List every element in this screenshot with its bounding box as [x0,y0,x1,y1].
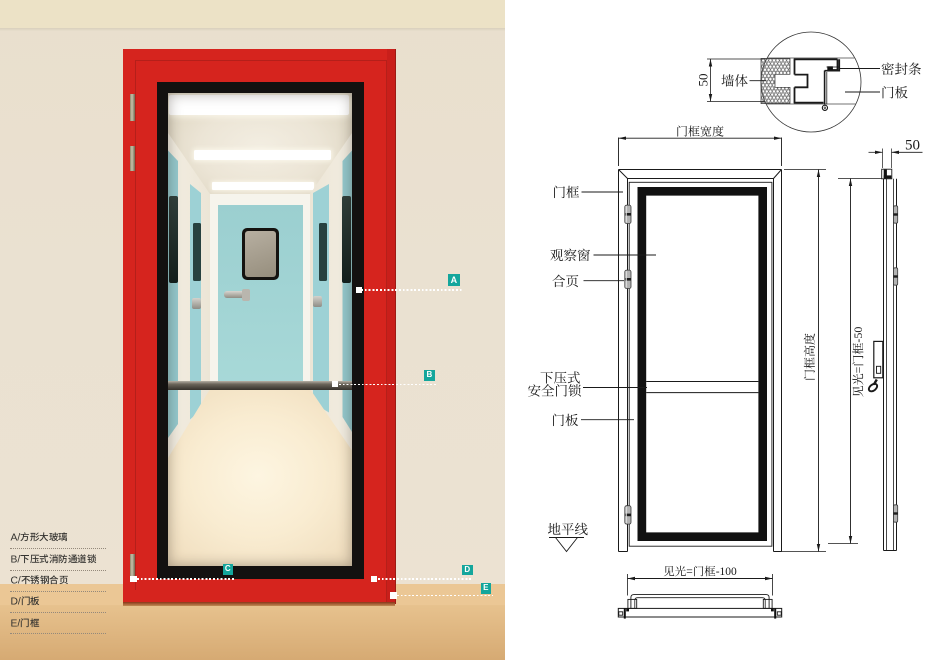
svg-text:=: = [851,366,865,373]
svg-text:5: 5 [905,138,913,154]
svg-text:0: 0 [851,327,865,333]
svg-text:0: 0 [731,566,737,578]
svg-text:0: 0 [913,138,921,154]
svg-text:=: = [686,566,693,578]
svg-text:0: 0 [696,74,711,81]
